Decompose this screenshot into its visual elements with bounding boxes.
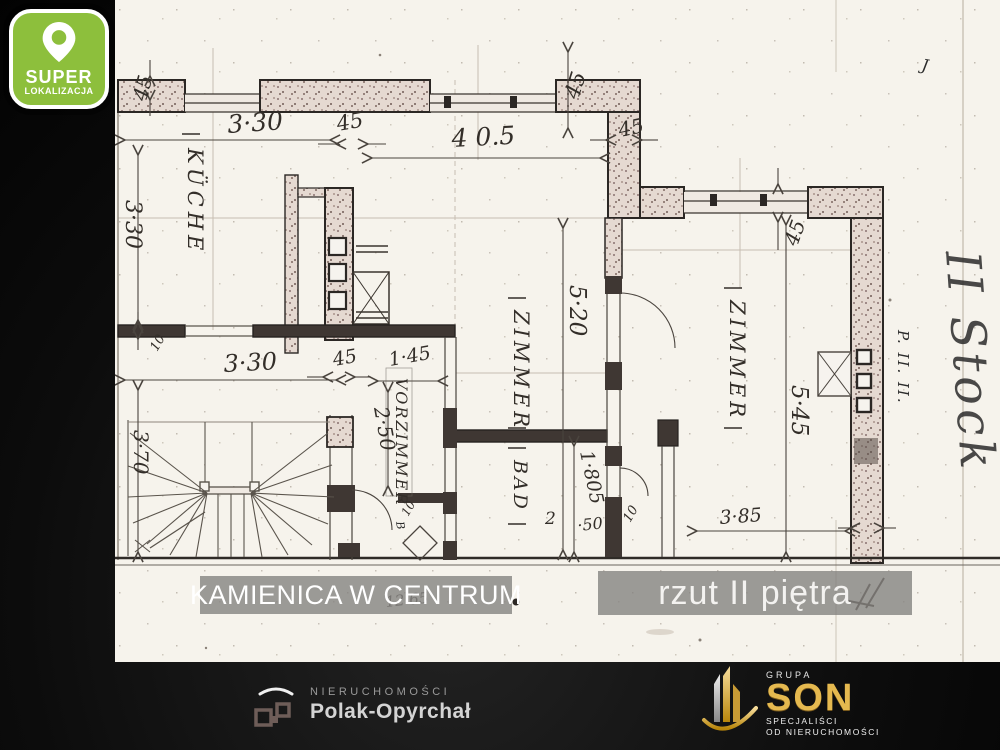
agency-name: Polak-Opyrchał bbox=[310, 700, 471, 724]
svg-text:3·30: 3·30 bbox=[223, 347, 278, 378]
badge-title: SUPER bbox=[13, 69, 105, 86]
title-overlay-left: KAMIENICA W CENTRUM bbox=[200, 576, 512, 614]
svg-text:5·20: 5·20 bbox=[564, 285, 590, 336]
label-room-right: ZIMMER bbox=[725, 299, 749, 421]
svg-text:3·85: 3·85 bbox=[719, 504, 763, 529]
svg-text:45: 45 bbox=[330, 345, 359, 371]
svg-text:5·45: 5·45 bbox=[786, 385, 812, 436]
svg-text:2: 2 bbox=[544, 509, 556, 529]
floorplan-scan: KÜCHE ZIMMER BAD VORZIMMER ZIMMER 3·30 4… bbox=[115, 0, 1000, 662]
title-overlay-right-text: rzut II piętra bbox=[658, 574, 852, 613]
svg-text:3·70: 3·70 bbox=[129, 430, 153, 475]
svg-text:3·30: 3·30 bbox=[120, 200, 145, 249]
svg-text:4 0.5: 4 0.5 bbox=[450, 121, 516, 153]
group-name: SON bbox=[766, 680, 880, 716]
label-room-center: ZIMMER bbox=[509, 309, 533, 431]
location-pin-icon bbox=[13, 20, 105, 69]
agency-tagline: NIERUCHOMOŚCI bbox=[310, 686, 471, 698]
svg-text:3·30: 3·30 bbox=[226, 106, 284, 139]
plan-ref: P. II. II. bbox=[894, 329, 912, 405]
group-sub2: OD NIERUCHOMOŚCI bbox=[766, 727, 880, 738]
title-overlay-left-text: KAMIENICA W CENTRUM bbox=[190, 580, 522, 611]
super-location-badge: SUPER LOKALIZACJA bbox=[9, 9, 109, 109]
floorplan-drawing: KÜCHE ZIMMER BAD VORZIMMER ZIMMER 3·30 4… bbox=[115, 0, 1000, 662]
label-kitchen: KÜCHE bbox=[183, 147, 208, 255]
title-overlay-right: rzut II piętra bbox=[598, 571, 912, 615]
agency-logo: NIERUCHOMOŚCI Polak-Opyrchał bbox=[252, 682, 471, 732]
svg-text:45: 45 bbox=[334, 108, 365, 136]
group-sub1: SPECJALIŚCI bbox=[766, 716, 880, 727]
listing-image: KÜCHE ZIMMER BAD VORZIMMER ZIMMER 3·30 4… bbox=[0, 0, 1000, 750]
label-bath: BAD bbox=[509, 459, 531, 512]
group-logo: GRUPA SON SPECJALIŚCI OD NIERUCHOMOŚCI bbox=[700, 662, 880, 744]
group-tower-icon bbox=[700, 662, 758, 744]
agency-buildings-icon bbox=[252, 682, 300, 732]
svg-text:·50: ·50 bbox=[576, 513, 603, 535]
badge-subtitle: LOKALIZACJA bbox=[13, 86, 105, 97]
